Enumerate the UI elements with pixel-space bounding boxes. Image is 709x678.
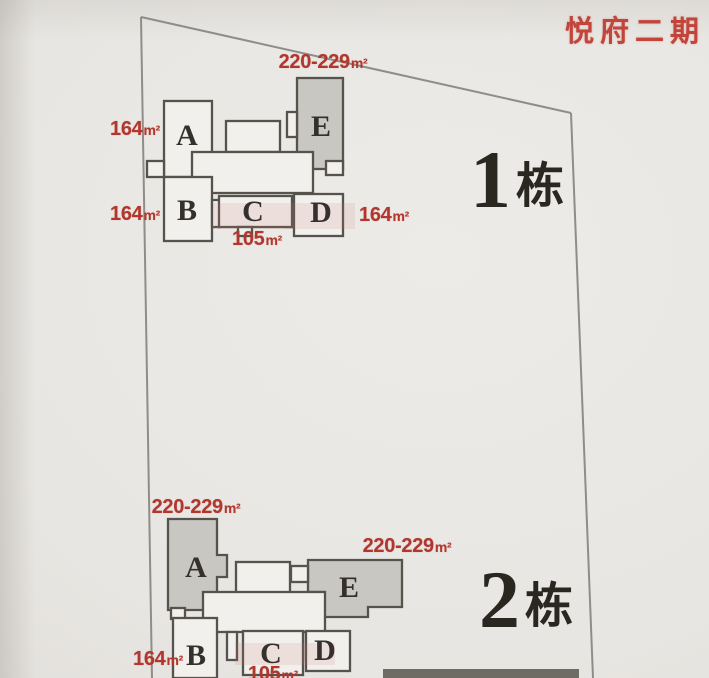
b1-area-e-value: 220-229 bbox=[279, 51, 350, 73]
b1-area-label-a: 164m² bbox=[110, 119, 160, 139]
boundary-right-line bbox=[571, 113, 593, 678]
b1-area-label-b: 164m² bbox=[110, 204, 160, 224]
b1-e-left-stub bbox=[287, 112, 297, 137]
b1-core-top-box bbox=[226, 121, 280, 152]
b2-area-label-c: 105m² bbox=[248, 664, 298, 678]
boundary-left-line bbox=[141, 17, 152, 678]
b1-area-a-value: 164 bbox=[110, 118, 142, 140]
b2-unit-e-letter: E bbox=[339, 573, 359, 603]
building-2-suffix: 栋 bbox=[525, 583, 573, 631]
b2-unit-b-letter: B bbox=[186, 641, 206, 671]
b2-area-label-b: 164m² bbox=[133, 649, 183, 669]
b2-area-label-a: 220-229m² bbox=[152, 497, 241, 517]
b1-area-label-c: 105m² bbox=[232, 229, 282, 249]
b2-area-b-value: 164 bbox=[133, 648, 165, 670]
b2-area-a-value: 220-229 bbox=[152, 496, 223, 518]
b1-area-b-value: 164 bbox=[110, 203, 142, 225]
b1-area-label-d: 164m² bbox=[359, 205, 409, 225]
b1-area-label-e: 220-229m² bbox=[279, 52, 368, 72]
b1-area-d-unit: m² bbox=[392, 208, 409, 224]
building-2-label: 2 栋 bbox=[479, 568, 573, 632]
b2-area-e-value: 220-229 bbox=[363, 535, 434, 557]
b2-area-b-unit: m² bbox=[166, 652, 183, 668]
b1-unit-e-letter: E bbox=[311, 112, 331, 142]
b2-e-left-stub bbox=[291, 566, 308, 582]
b1-highlight-smear bbox=[213, 203, 355, 229]
b2-unit-a-letter: A bbox=[185, 553, 207, 583]
site-plan-photo: 悦府二期 1 栋 2 栋 A B C D E A B C D E 220-229… bbox=[0, 0, 709, 678]
b2-core-top-box bbox=[236, 562, 290, 593]
building-1-label: 1 栋 bbox=[470, 148, 564, 212]
b1-area-e-unit: m² bbox=[351, 55, 368, 71]
building-2-number: 2 bbox=[479, 568, 520, 632]
b2-unit-d-letter: D bbox=[314, 636, 336, 666]
b1-unit-b-letter: B bbox=[177, 196, 197, 226]
b1-left-stub bbox=[147, 161, 164, 177]
b2-area-e-unit: m² bbox=[435, 539, 452, 555]
b2-corridor bbox=[203, 592, 325, 632]
b2-area-label-e: 220-229m² bbox=[363, 536, 452, 556]
photo-bottom-dark-edge bbox=[383, 669, 579, 678]
b1-unit-c-letter: C bbox=[242, 197, 264, 227]
b1-unit-d-letter: D bbox=[310, 198, 332, 228]
b1-area-c-value: 105 bbox=[232, 228, 264, 250]
b1-area-b-unit: m² bbox=[143, 207, 160, 223]
b2-area-c-value: 105 bbox=[248, 663, 280, 678]
b1-area-d-value: 164 bbox=[359, 204, 391, 226]
b1-e-bottom-stub bbox=[326, 161, 343, 175]
b2-area-a-unit: m² bbox=[224, 500, 241, 516]
building-1-number: 1 bbox=[470, 148, 511, 212]
b1-unit-a-letter: A bbox=[176, 121, 198, 151]
building-1-suffix: 栋 bbox=[516, 163, 564, 211]
b2-area-c-unit: m² bbox=[281, 667, 298, 678]
b1-area-a-unit: m² bbox=[143, 122, 160, 138]
project-title: 悦府二期 bbox=[565, 17, 705, 49]
b1-area-c-unit: m² bbox=[265, 232, 282, 248]
